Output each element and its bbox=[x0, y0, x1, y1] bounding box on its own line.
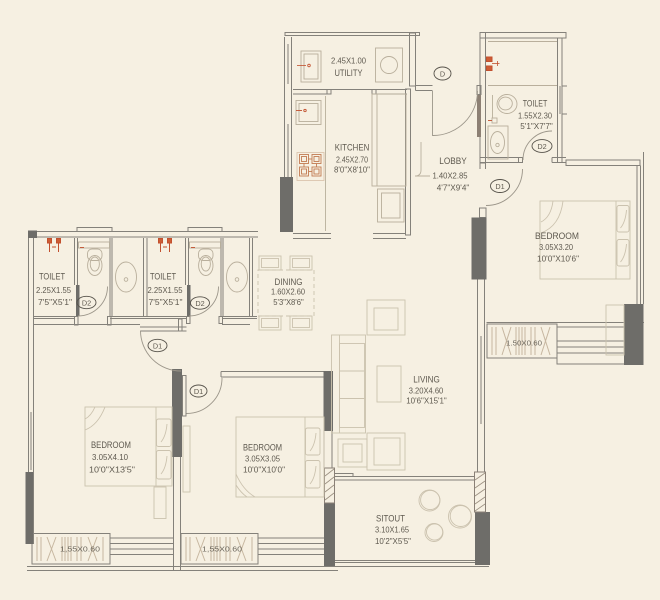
svg-text:BEDROOM: BEDROOM bbox=[243, 443, 282, 453]
svg-text:D1: D1 bbox=[153, 342, 162, 351]
svg-text:2.25X1.55: 2.25X1.55 bbox=[148, 285, 183, 295]
svg-text:TOILET: TOILET bbox=[150, 272, 176, 282]
svg-text:TOILET: TOILET bbox=[523, 99, 548, 109]
svg-text:D2: D2 bbox=[537, 142, 546, 151]
svg-text:2.45X1.00: 2.45X1.00 bbox=[331, 56, 366, 66]
svg-text:1.55X2.30: 1.55X2.30 bbox=[518, 111, 552, 121]
svg-text:3.05X3.05: 3.05X3.05 bbox=[245, 454, 280, 464]
svg-text:3.05X4.10: 3.05X4.10 bbox=[92, 452, 128, 462]
svg-text:LIVING: LIVING bbox=[413, 375, 440, 385]
svg-text:LOBBY: LOBBY bbox=[439, 156, 467, 166]
svg-text:BEDROOM: BEDROOM bbox=[91, 440, 131, 450]
svg-text:2.25X1.55: 2.25X1.55 bbox=[36, 285, 71, 295]
svg-text:D: D bbox=[440, 70, 445, 79]
svg-text:1.60X2.60: 1.60X2.60 bbox=[271, 287, 305, 297]
svg-text:KITCHEN: KITCHEN bbox=[335, 143, 370, 153]
svg-text:10'0"X10'6": 10'0"X10'6" bbox=[537, 254, 579, 264]
svg-text:5'3"X8'6": 5'3"X8'6" bbox=[273, 297, 304, 307]
svg-text:7'5"X5'1": 7'5"X5'1" bbox=[149, 297, 183, 307]
svg-text:10'6"X15'1": 10'6"X15'1" bbox=[406, 396, 447, 406]
svg-text:1.40X2.85: 1.40X2.85 bbox=[433, 171, 468, 181]
svg-text:D2: D2 bbox=[195, 299, 204, 308]
svg-text:1.50X0.60: 1.50X0.60 bbox=[506, 339, 542, 348]
svg-text:4'7"X9'4": 4'7"X9'4" bbox=[437, 183, 470, 193]
svg-text:SITOUT: SITOUT bbox=[376, 514, 405, 524]
svg-text:UTILITY: UTILITY bbox=[335, 68, 363, 78]
svg-text:DINING: DINING bbox=[275, 277, 303, 287]
svg-text:TOILET: TOILET bbox=[39, 272, 65, 282]
svg-text:D1: D1 bbox=[194, 387, 203, 396]
svg-text:1,55X0.60: 1,55X0.60 bbox=[60, 545, 100, 554]
svg-text:3.20X4.60: 3.20X4.60 bbox=[409, 386, 444, 396]
svg-text:10'0"X13'5": 10'0"X13'5" bbox=[89, 465, 135, 475]
svg-text:8'0"X8'10": 8'0"X8'10" bbox=[334, 165, 370, 175]
svg-text:3.10X1.65: 3.10X1.65 bbox=[375, 525, 409, 535]
svg-text:5'1"X7'7": 5'1"X7'7" bbox=[520, 121, 553, 131]
svg-text:D2: D2 bbox=[82, 299, 91, 308]
svg-text:3.05X3.20: 3.05X3.20 bbox=[539, 242, 573, 252]
svg-text:1,55X0.60: 1,55X0.60 bbox=[202, 545, 242, 554]
svg-text:D1: D1 bbox=[495, 182, 504, 191]
svg-text:2.45X2.70: 2.45X2.70 bbox=[336, 155, 368, 165]
svg-text:10'2"X5'5": 10'2"X5'5" bbox=[375, 536, 411, 546]
svg-text:7'5"X5'1": 7'5"X5'1" bbox=[38, 297, 72, 307]
svg-text:10'0"X10'0": 10'0"X10'0" bbox=[243, 465, 285, 475]
svg-text:BEDROOM: BEDROOM bbox=[535, 231, 579, 241]
